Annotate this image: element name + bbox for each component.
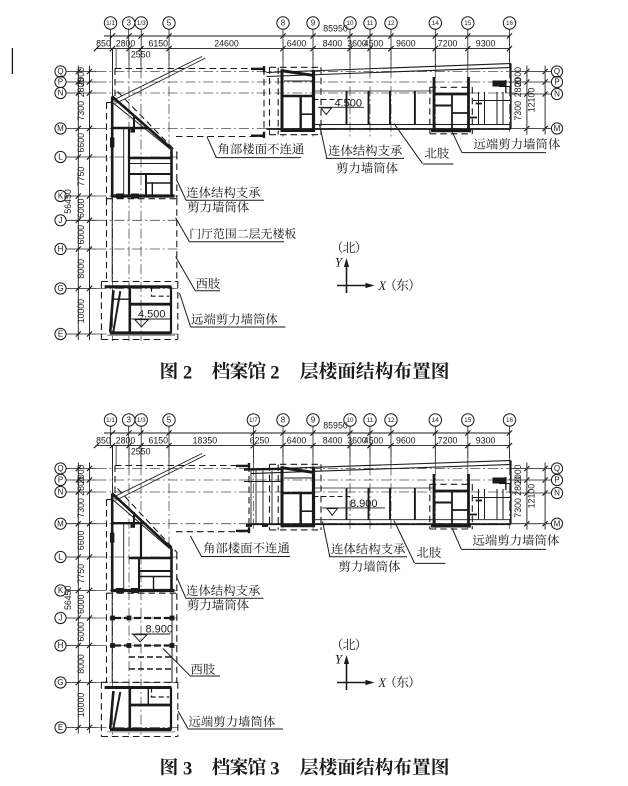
svg-text:N: N bbox=[554, 90, 560, 99]
svg-text:L: L bbox=[58, 553, 63, 562]
svg-text:6400: 6400 bbox=[287, 38, 307, 48]
svg-text:2800: 2800 bbox=[76, 78, 86, 98]
svg-text:5: 5 bbox=[167, 416, 172, 425]
svg-text:85950: 85950 bbox=[323, 421, 348, 431]
svg-text:X: X bbox=[378, 279, 388, 293]
svg-text:10000: 10000 bbox=[76, 693, 86, 718]
svg-text:15: 15 bbox=[464, 417, 472, 424]
svg-text:Q: Q bbox=[554, 67, 560, 76]
svg-text:7300: 7300 bbox=[76, 101, 86, 121]
svg-text:56450: 56450 bbox=[63, 585, 73, 610]
svg-text:9300: 9300 bbox=[476, 435, 496, 445]
svg-text:7300: 7300 bbox=[513, 498, 523, 518]
svg-text:P: P bbox=[58, 476, 63, 485]
svg-text:4.500: 4.500 bbox=[138, 308, 166, 320]
svg-text:G: G bbox=[57, 678, 63, 687]
svg-text:H: H bbox=[58, 641, 64, 650]
svg-text:M: M bbox=[554, 519, 561, 528]
svg-text:850: 850 bbox=[96, 38, 111, 48]
svg-text:1/3: 1/3 bbox=[137, 20, 146, 27]
svg-text:6400: 6400 bbox=[287, 435, 307, 445]
svg-text:9: 9 bbox=[311, 416, 316, 425]
svg-text:7750: 7750 bbox=[76, 167, 86, 187]
svg-text:M: M bbox=[554, 124, 561, 133]
svg-text:1/3: 1/3 bbox=[137, 417, 146, 424]
svg-text:6600: 6600 bbox=[76, 531, 86, 551]
svg-text:14: 14 bbox=[432, 20, 440, 27]
svg-text:15: 15 bbox=[464, 20, 472, 27]
svg-text:7750: 7750 bbox=[76, 564, 86, 584]
svg-text:12: 12 bbox=[387, 20, 395, 27]
svg-text:8: 8 bbox=[281, 19, 286, 28]
svg-text:J: J bbox=[59, 614, 63, 623]
svg-text:G: G bbox=[57, 284, 63, 293]
svg-text:N: N bbox=[58, 488, 64, 497]
svg-text:3: 3 bbox=[270, 759, 279, 779]
svg-text:8000: 8000 bbox=[76, 259, 86, 279]
svg-text:H: H bbox=[58, 245, 64, 254]
svg-text:6000: 6000 bbox=[76, 594, 86, 614]
svg-text:P: P bbox=[58, 78, 63, 87]
svg-text:N: N bbox=[58, 89, 64, 98]
svg-text:24600: 24600 bbox=[214, 38, 239, 48]
svg-text:4500: 4500 bbox=[364, 38, 384, 48]
svg-text:11: 11 bbox=[367, 20, 374, 27]
svg-text:8: 8 bbox=[281, 416, 286, 425]
svg-text:5: 5 bbox=[167, 19, 172, 28]
svg-text:9: 9 bbox=[311, 19, 316, 28]
svg-text:4500: 4500 bbox=[364, 435, 384, 445]
svg-text:6000: 6000 bbox=[76, 198, 86, 218]
svg-text:9600: 9600 bbox=[396, 435, 416, 445]
svg-text:L: L bbox=[58, 153, 63, 162]
svg-text:9600: 9600 bbox=[396, 38, 416, 48]
svg-text:2800: 2800 bbox=[116, 435, 136, 445]
svg-text:M: M bbox=[57, 124, 64, 133]
svg-text:12100: 12100 bbox=[527, 484, 537, 509]
svg-text:56450: 56450 bbox=[63, 189, 73, 214]
svg-text:16: 16 bbox=[506, 20, 514, 27]
svg-text:12: 12 bbox=[387, 417, 395, 424]
svg-text:18350: 18350 bbox=[193, 435, 218, 445]
svg-text:6000: 6000 bbox=[76, 225, 86, 245]
svg-text:7200: 7200 bbox=[438, 435, 458, 445]
svg-text:1/1: 1/1 bbox=[106, 20, 115, 27]
svg-text:6600: 6600 bbox=[76, 133, 86, 153]
svg-text:6000: 6000 bbox=[76, 622, 86, 642]
svg-text:850: 850 bbox=[96, 435, 111, 445]
svg-text:2800: 2800 bbox=[513, 476, 523, 496]
svg-text:85950: 85950 bbox=[323, 24, 348, 34]
svg-text:8400: 8400 bbox=[323, 38, 343, 48]
svg-text:E: E bbox=[58, 723, 63, 732]
svg-text:7300: 7300 bbox=[513, 101, 523, 121]
svg-text:1/1: 1/1 bbox=[106, 417, 115, 424]
svg-text:2800: 2800 bbox=[116, 38, 136, 48]
svg-text:10000: 10000 bbox=[76, 299, 86, 324]
svg-text:14: 14 bbox=[432, 417, 440, 424]
svg-text:6150: 6150 bbox=[149, 38, 169, 48]
svg-text:2: 2 bbox=[183, 363, 192, 383]
svg-text:P: P bbox=[554, 476, 559, 485]
svg-text:N: N bbox=[554, 489, 560, 498]
svg-text:6250: 6250 bbox=[250, 435, 270, 445]
svg-text:2800: 2800 bbox=[513, 78, 523, 98]
svg-text:2: 2 bbox=[270, 363, 279, 383]
svg-text:8.900: 8.900 bbox=[146, 623, 174, 635]
svg-text:9300: 9300 bbox=[476, 38, 496, 48]
svg-text:Q: Q bbox=[57, 67, 63, 76]
svg-text:8000: 8000 bbox=[76, 654, 86, 674]
svg-text:1/7: 1/7 bbox=[249, 417, 258, 424]
svg-text:3: 3 bbox=[183, 759, 192, 779]
svg-text:3: 3 bbox=[126, 416, 131, 425]
svg-text:7200: 7200 bbox=[438, 38, 458, 48]
svg-text:Q: Q bbox=[554, 464, 560, 473]
svg-text:J: J bbox=[59, 216, 63, 225]
svg-text:2800: 2800 bbox=[76, 476, 86, 496]
svg-text:11: 11 bbox=[367, 417, 374, 424]
svg-text:3: 3 bbox=[126, 19, 131, 28]
svg-text:P: P bbox=[554, 78, 559, 87]
svg-text:8400: 8400 bbox=[323, 435, 343, 445]
svg-text:E: E bbox=[58, 330, 63, 339]
svg-text:M: M bbox=[57, 519, 64, 528]
svg-text:X: X bbox=[378, 676, 388, 690]
svg-text:7300: 7300 bbox=[76, 498, 86, 518]
svg-text:12100: 12100 bbox=[527, 88, 537, 113]
svg-text:6150: 6150 bbox=[149, 435, 169, 445]
svg-text:16: 16 bbox=[506, 417, 514, 424]
svg-text:Q: Q bbox=[57, 464, 63, 473]
